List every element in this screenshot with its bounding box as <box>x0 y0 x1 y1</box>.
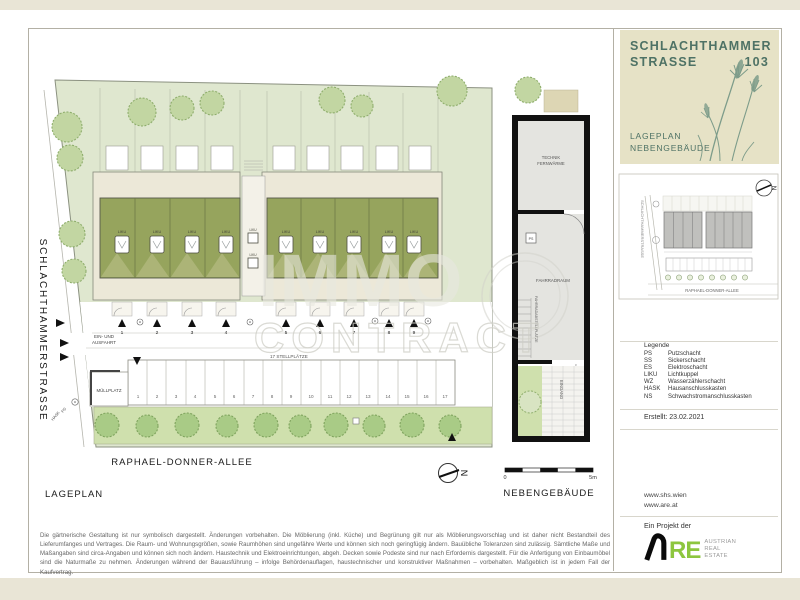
svg-text:1: 1 <box>121 330 124 336</box>
svg-text:3: 3 <box>191 330 194 336</box>
outbuilding-wall-mid <box>518 210 564 214</box>
minimap-gardens <box>663 196 752 211</box>
legend-abbr: HASK <box>644 386 668 392</box>
legend-term: Sickerschacht <box>668 358 705 364</box>
are-logo-text: RE <box>669 541 700 561</box>
ps-label: PS <box>60 406 67 414</box>
site-plan-drawing: SCHLACHTHAMMERSTRASSE RAPHAEL-DONNER-ALL… <box>28 28 613 571</box>
scale-bar <box>505 468 593 472</box>
svg-text:8: 8 <box>271 394 274 399</box>
plan-sheet-page: SCHLACHTHAMMERSTRASSE RAPHAEL-DONNER-ALL… <box>0 0 800 600</box>
panel-divider-line <box>613 28 614 571</box>
legend-term: Hausanschlusskasten <box>668 386 726 392</box>
svg-text:5: 5 <box>285 330 288 336</box>
bottom-margin-bar <box>0 578 800 600</box>
svg-text:LIKU: LIKU <box>118 230 127 234</box>
scale-five: 5m <box>589 475 597 481</box>
legend-term: Elektroschacht <box>668 365 707 371</box>
key-plan-minimap: N SCHLACHTHAMMERSTRASSE RAPHAEL-DONNER-A… <box>618 173 780 301</box>
room-mid-label: FAHRRADRAUM <box>536 278 570 283</box>
room-mid-side-label: FAHRRADABSTELLPLÄTZE <box>534 296 538 343</box>
svg-text:15: 15 <box>404 394 410 399</box>
legend-row: WZWasserzählerschacht <box>644 379 776 385</box>
svg-text:LIKU: LIKU <box>222 230 231 234</box>
svg-text:2: 2 <box>156 394 159 399</box>
svg-text:LIKU: LIKU <box>282 230 291 234</box>
street-label-left: SCHLACHTHAMMERSTRASSE <box>37 239 48 422</box>
minimap-north-letter: N <box>770 186 776 190</box>
svg-text:14: 14 <box>385 394 391 399</box>
legend-abbr: WZ <box>644 379 668 385</box>
plan-caption: LAGEPLAN <box>45 489 103 500</box>
svg-text:LIKU: LIKU <box>249 228 257 232</box>
outbuilding-patch <box>544 90 578 112</box>
legend-abbr: NS <box>644 394 668 400</box>
website-link-2[interactable]: www.are.at <box>644 502 678 509</box>
svg-text:7: 7 <box>252 394 255 399</box>
room-top-label-1: TECHNIK <box>542 155 561 160</box>
legend-abbr: SS <box>644 358 668 364</box>
svg-text:2: 2 <box>156 330 159 336</box>
svg-text:6: 6 <box>233 394 236 399</box>
legend-block: Legende PSPutzschacht SSSickerschacht ES… <box>644 342 776 400</box>
top-margin-bar <box>0 0 800 10</box>
legend-row: ESElektroschacht <box>644 365 776 371</box>
legend-heading: Legende <box>644 342 776 349</box>
svg-text:4: 4 <box>225 330 228 336</box>
svg-text:8: 8 <box>388 330 391 336</box>
panel-rule-2 <box>620 409 778 410</box>
svg-text:LIKU: LIKU <box>188 230 197 234</box>
caption-line: REAL <box>704 546 736 553</box>
svg-text:1: 1 <box>137 394 140 399</box>
legend-abbr: LIKU <box>644 372 668 378</box>
svg-text:LIKU: LIKU <box>385 230 394 234</box>
project-credit-label: Ein Projekt der <box>644 521 691 530</box>
svg-text:17: 17 <box>442 394 448 399</box>
outbuilding-tree <box>519 391 541 413</box>
minimap-street-left-label: SCHLACHTHAMMERSTRASSE <box>640 200 645 258</box>
svg-text:10: 10 <box>308 394 314 399</box>
svg-text:12: 12 <box>346 394 352 399</box>
outbuilding-ps-label: PS <box>529 237 534 241</box>
svg-text:13: 13 <box>365 394 371 399</box>
panel-rule-4 <box>620 516 778 517</box>
svg-text:16: 16 <box>423 394 429 399</box>
driveway-gap <box>70 333 90 355</box>
entry-exit-arrow-icons <box>56 319 69 361</box>
legend-row: SSSickerschacht <box>644 358 776 364</box>
minimap-street-bottom-label: RAPHAEL-DONNER-ALLEE <box>685 288 739 293</box>
are-logo-glyph-icon <box>644 533 668 561</box>
legend-row: HASKHausanschlusskasten <box>644 386 776 392</box>
svg-text:LIKU: LIKU <box>153 230 162 234</box>
project-title-line1: SCHLACHTHAMMER <box>630 39 772 53</box>
svg-text:LIKU: LIKU <box>410 230 419 234</box>
svg-text:11: 11 <box>328 394 333 399</box>
scale-zero: 0 <box>503 475 506 481</box>
disclaimer-text: Die gärtnerische Gestaltung ist nur symb… <box>40 531 610 577</box>
street-label-bottom: RAPHAEL-DONNER-ALLEE <box>111 457 252 468</box>
legend-abbr: ES <box>644 365 668 371</box>
svg-text:9: 9 <box>413 330 416 336</box>
panel-rule-3 <box>620 429 778 430</box>
svg-text:LIKU: LIKU <box>316 230 325 234</box>
legend-term: Putzschacht <box>668 351 701 357</box>
bike-stand-ticks <box>518 298 531 358</box>
svg-text:LIKU: LIKU <box>249 253 257 257</box>
are-logo: RE AUSTRIAN REAL ESTATE <box>644 533 736 561</box>
svg-text:5: 5 <box>214 394 217 399</box>
svg-text:LIKU: LIKU <box>350 230 359 234</box>
legend-term: Wasserzählerschacht <box>668 379 725 385</box>
legend-term: Lichtkuppel <box>668 372 698 378</box>
legend-row: LIKULichtkuppel <box>644 372 776 378</box>
hask-label: HASK <box>50 410 61 422</box>
title-subtitle: LAGEPLAN NEBENGEBÄUDE <box>630 131 710 154</box>
muellplatz-label: MÜLLPLATZ <box>96 388 121 393</box>
legend-row: NSSchwachstromanschlusskasten <box>644 394 776 400</box>
svg-text:6: 6 <box>319 330 322 336</box>
created-date: Erstellt: 23.02.2021 <box>644 414 704 421</box>
entry-label-2: AUSFAHRT <box>92 340 116 345</box>
north-letter: N <box>459 470 469 477</box>
room-top-label-2: FERNWÄRME <box>537 161 565 166</box>
caption-line: ESTATE <box>704 553 736 560</box>
svg-text:9: 9 <box>290 394 293 399</box>
entry-label-1: EIN- UND <box>94 334 115 339</box>
svg-text:4: 4 <box>194 394 197 399</box>
legend-term: Schwachstromanschlusskasten <box>668 394 752 400</box>
svg-text:7: 7 <box>353 330 356 336</box>
legend-row: PSPutzschacht <box>644 351 776 357</box>
shaft-box <box>353 418 359 424</box>
subtitle-line2: NEBENGEBÄUDE <box>630 143 710 154</box>
minimap-block-b <box>706 212 752 248</box>
north-needle <box>439 470 459 477</box>
stellplaetze-label: 17 STELLPLÄTZE <box>270 353 308 359</box>
legend-abbr: PS <box>644 351 668 357</box>
outbuilding-caption: NEBENGEBÄUDE <box>503 488 594 499</box>
subtitle-line1: LAGEPLAN <box>630 131 710 142</box>
website-link-1[interactable]: www.shs.wien <box>644 492 687 499</box>
are-logo-caption: AUSTRIAN REAL ESTATE <box>704 539 736 560</box>
outbuilding-wall-bottom <box>518 360 552 364</box>
entrance-label: EINGANG <box>559 380 564 399</box>
title-block: SCHLACHTHAMMER STRASSE 103 LAGEPLAN NEBE… <box>620 30 779 164</box>
caption-line: AUSTRIAN <box>704 539 736 546</box>
svg-text:3: 3 <box>175 394 178 399</box>
